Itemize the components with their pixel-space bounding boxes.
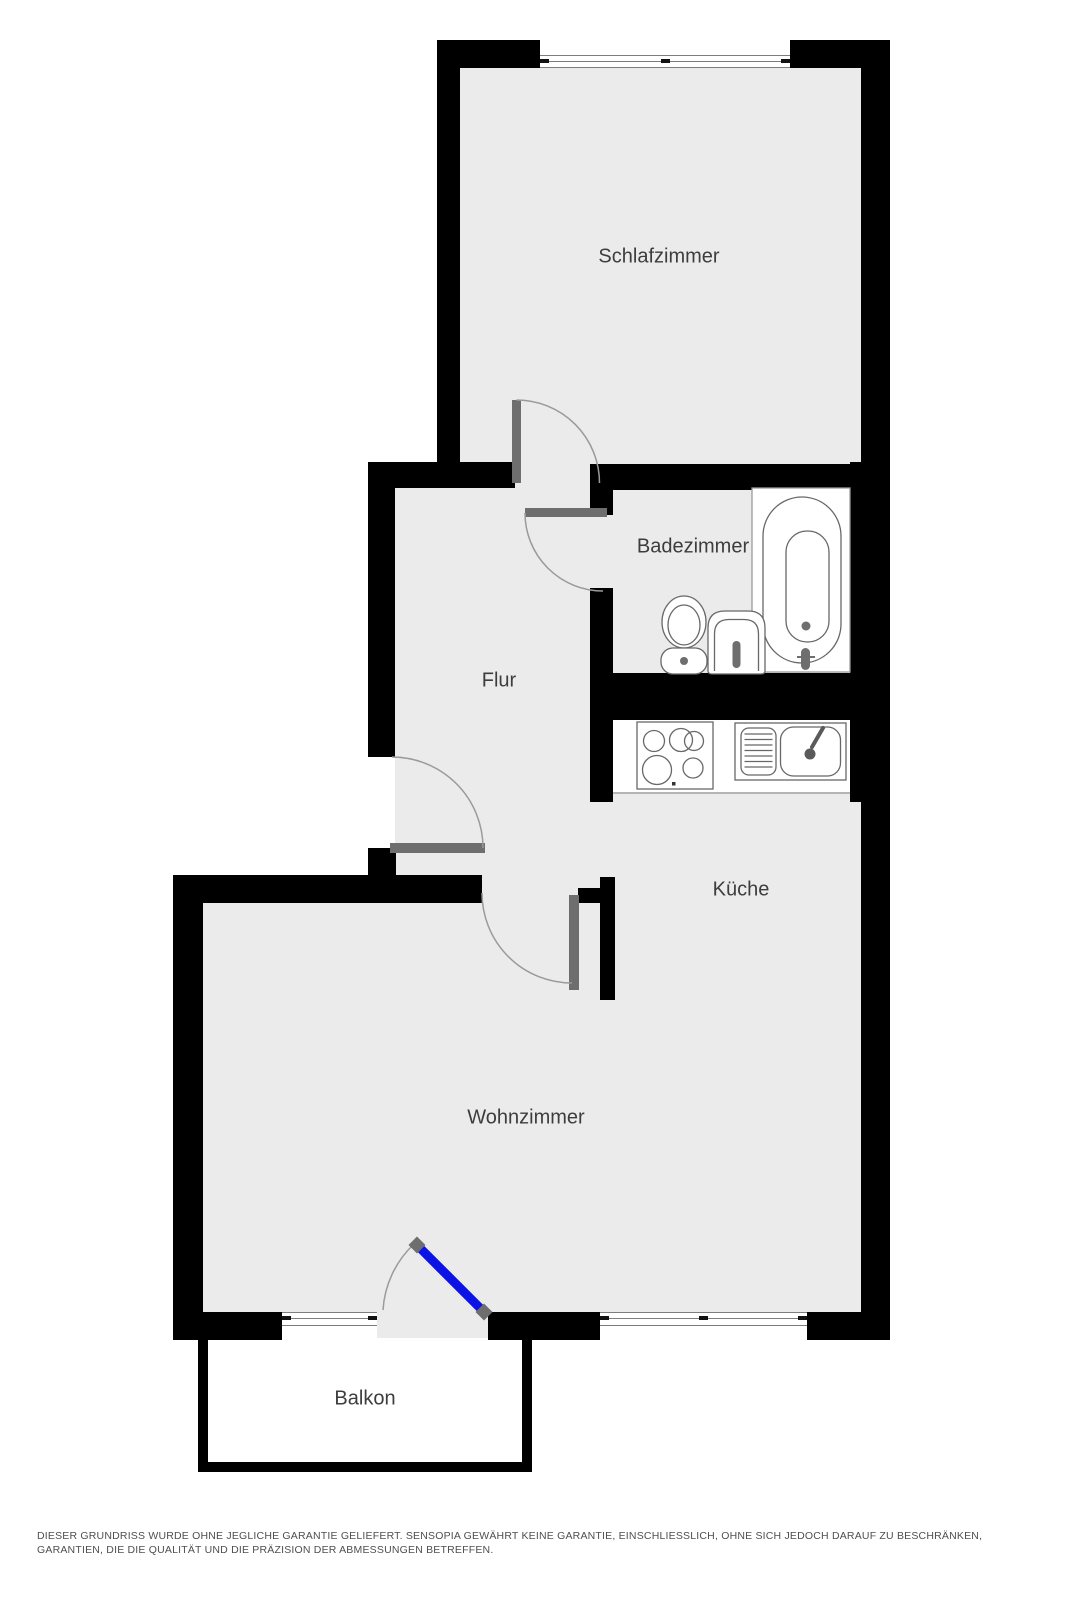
wall-segment xyxy=(590,673,862,720)
window-line xyxy=(600,1325,807,1326)
wall-segment xyxy=(590,588,613,673)
window-tick xyxy=(699,1316,708,1320)
window-line xyxy=(540,55,790,56)
wohnzimmer-door-leaf xyxy=(569,895,579,990)
wall-segment xyxy=(578,888,615,903)
window-schlafzimmer xyxy=(540,40,790,68)
window-tick xyxy=(661,59,670,63)
room-label-balkon: Balkon xyxy=(334,1388,395,1411)
window-line xyxy=(600,1312,807,1313)
floor-schlafzimmer xyxy=(448,52,861,488)
window-tick xyxy=(781,59,790,63)
wall-segment xyxy=(368,462,395,757)
wall-segment xyxy=(595,464,862,490)
window-tick xyxy=(600,1316,609,1320)
room-label-flur: Flur xyxy=(482,670,516,693)
window-line xyxy=(282,1325,377,1326)
room-label-schlafzimmer: Schlafzimmer xyxy=(598,246,719,269)
wall-segment xyxy=(807,1312,890,1340)
window-tick xyxy=(282,1316,291,1320)
schlafzimmer-door-leaf xyxy=(512,400,521,483)
badezimmer-door-leaf xyxy=(525,508,607,517)
window-tick xyxy=(540,59,549,63)
window-line xyxy=(282,1312,377,1313)
wall-segment xyxy=(850,462,890,802)
floor-badezimmer xyxy=(600,475,850,673)
entrance-door-leaf xyxy=(390,843,485,853)
window-wohnzimmer-left xyxy=(282,1312,377,1340)
wall-segment xyxy=(173,875,482,903)
wall-segment xyxy=(173,1312,282,1340)
window-tick xyxy=(798,1316,807,1320)
wall-segment xyxy=(173,875,203,1340)
window-line xyxy=(540,67,790,68)
wall-segment xyxy=(437,40,460,488)
room-label-kueche: Küche xyxy=(713,879,770,902)
room-label-badezimmer: Badezimmer xyxy=(637,536,749,559)
window-wohnzimmer-right xyxy=(600,1312,807,1340)
window-tick xyxy=(368,1316,377,1320)
room-label-wohnzimmer: Wohnzimmer xyxy=(467,1107,584,1130)
kitchen-counter xyxy=(613,720,850,794)
disclaimer-text: DIESER GRUNDRISS WURDE OHNE JEGLICHE GAR… xyxy=(37,1530,1017,1557)
wall-segment xyxy=(590,673,613,802)
window-line xyxy=(282,1318,377,1319)
wall-segment xyxy=(488,1312,600,1340)
floorplan-canvas: Schlafzimmer Badezimmer Flur Küche Wohnz… xyxy=(0,0,1067,1600)
